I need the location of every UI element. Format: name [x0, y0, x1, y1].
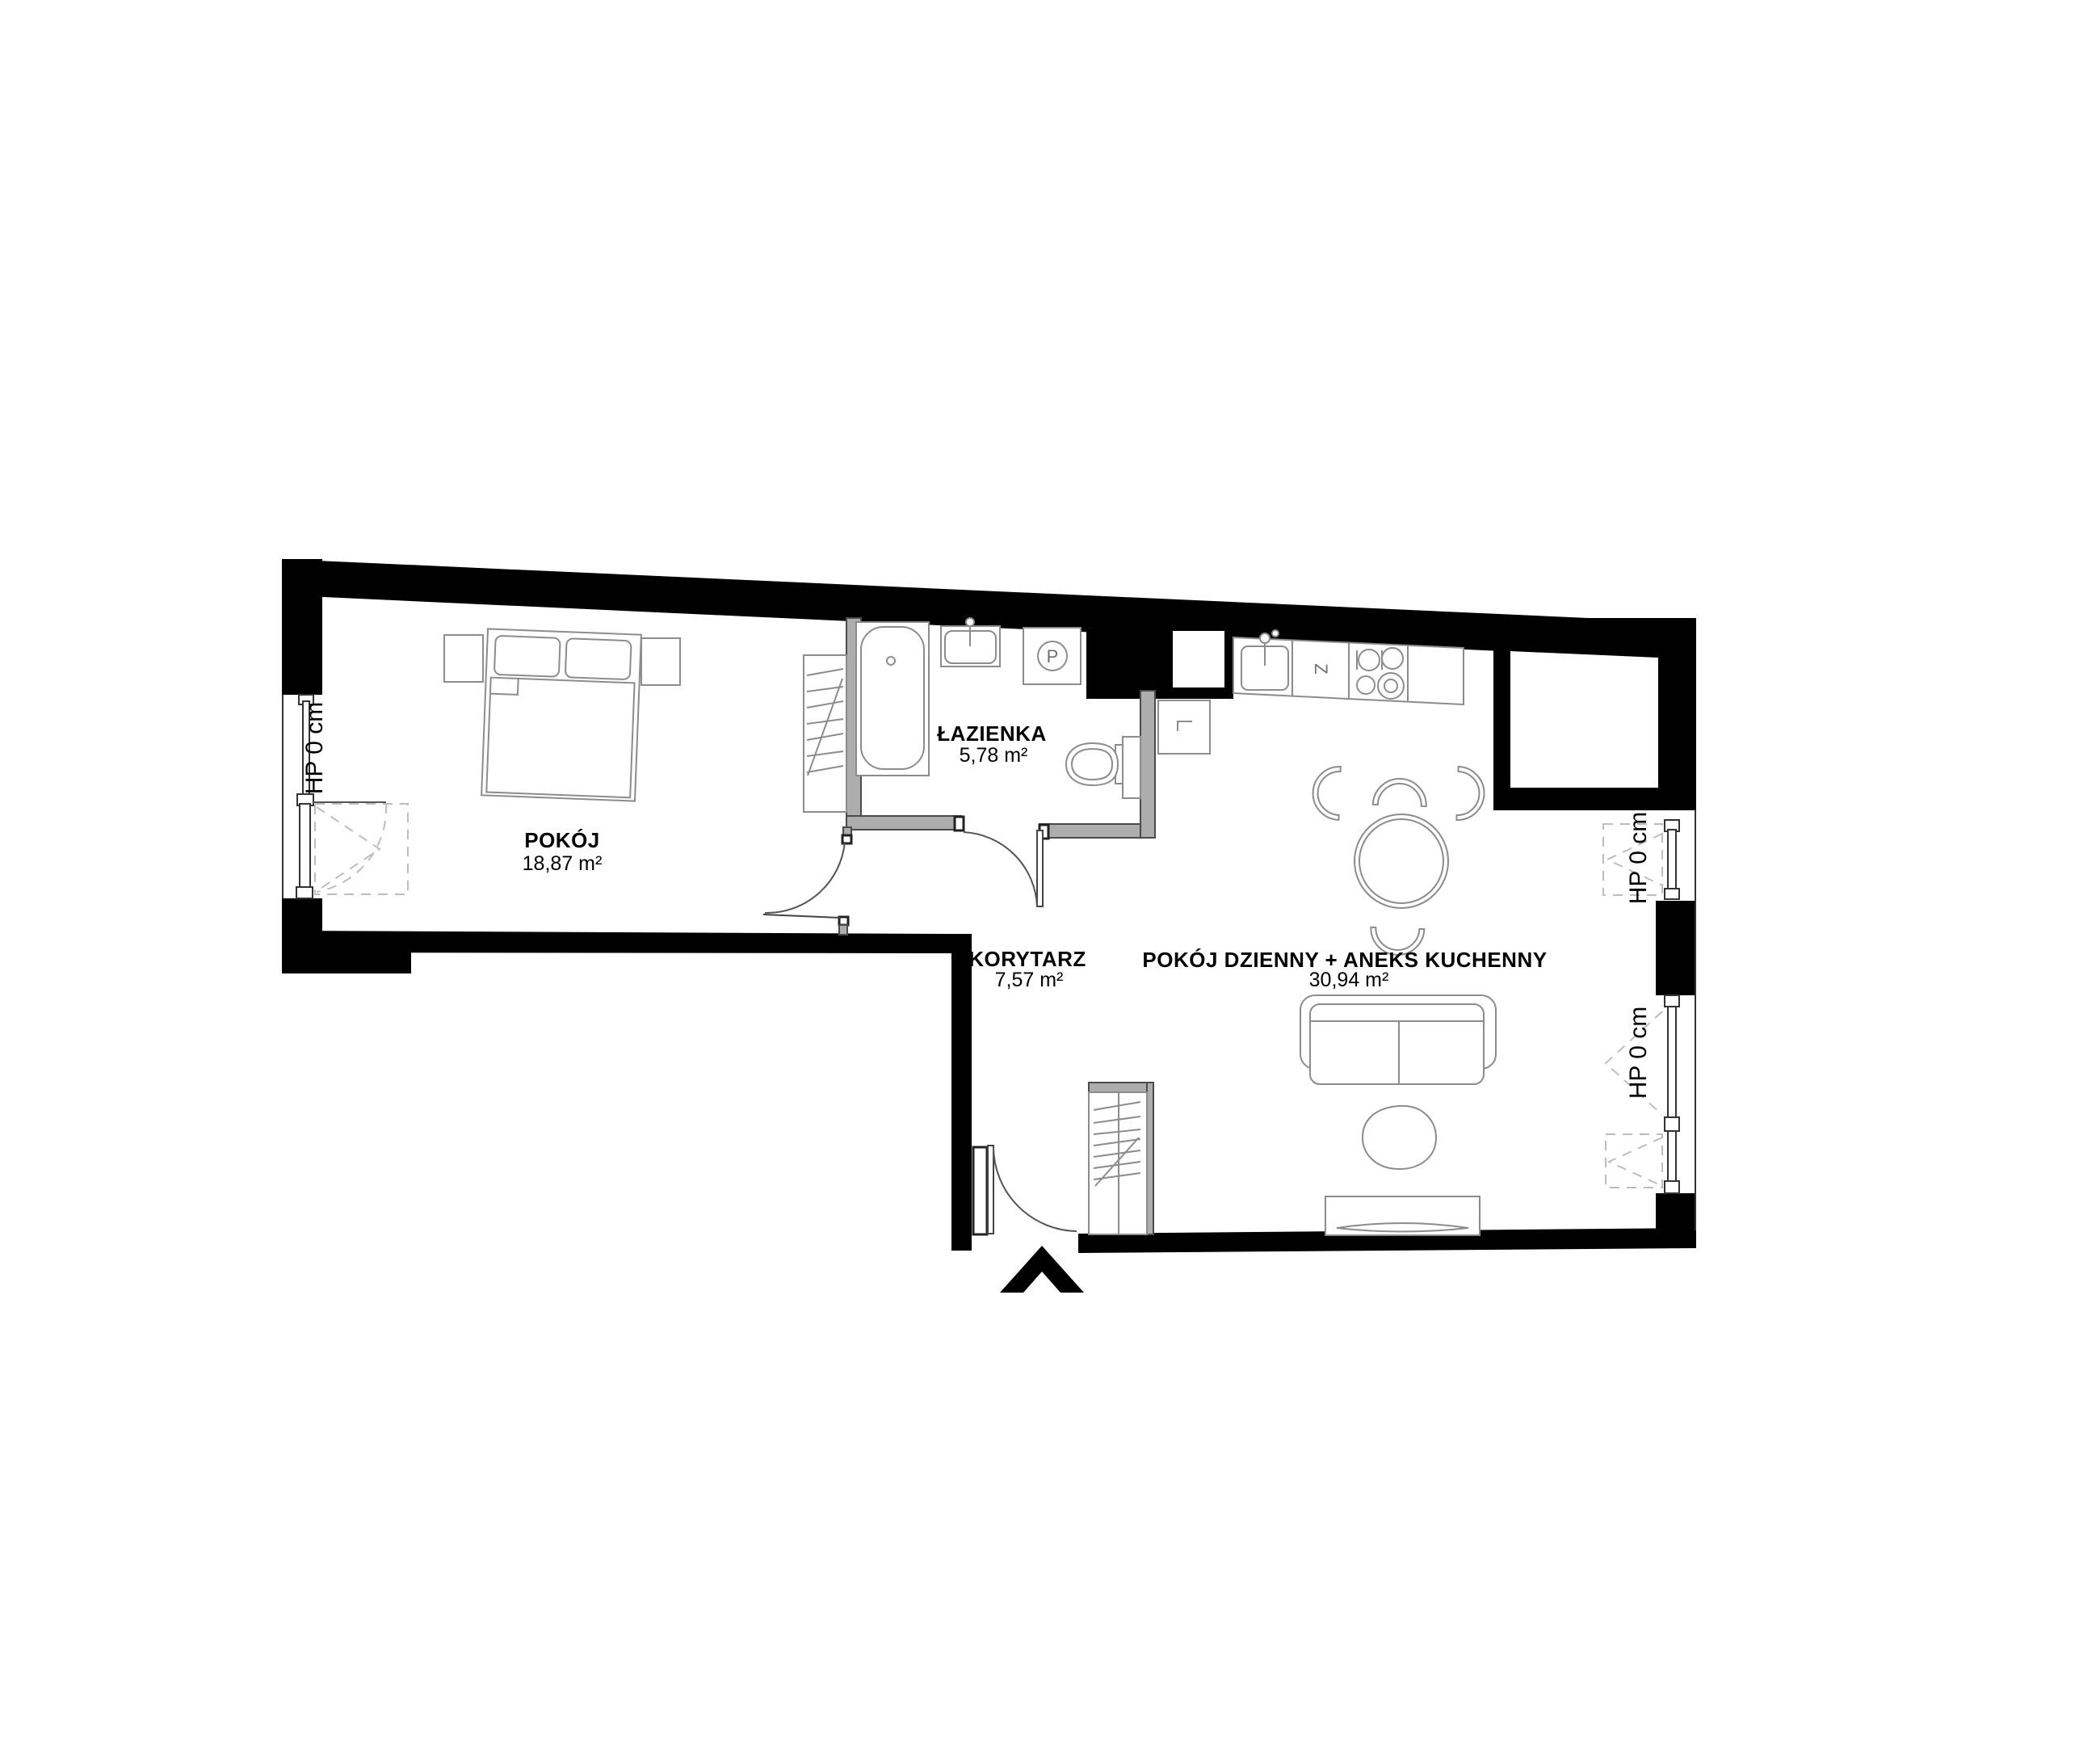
salon-area: 30,94 m²	[1309, 969, 1389, 991]
korytarz-label: KORYTARZ	[968, 947, 1086, 971]
right-lower-window-glazing-lower	[1668, 1131, 1676, 1181]
pokoj-divider-stub-bottom	[839, 925, 847, 935]
right-wall-bottom-block	[1656, 1193, 1696, 1248]
pokoj-bottom-wall	[282, 931, 951, 953]
bathroom-door-swing-arc	[964, 832, 1037, 906]
bed-pillow-left	[494, 636, 561, 677]
dishwasher-symbol: Z	[1311, 663, 1331, 674]
right-lower-window-glazing-upper	[1668, 1007, 1676, 1117]
right-upper-window-cap-bottom	[1665, 889, 1679, 899]
sofa-seat	[1310, 1004, 1484, 1084]
right-upper-window-glazing	[1668, 830, 1676, 889]
dining-table	[1354, 814, 1448, 908]
left-window-cap-bottom	[296, 887, 313, 898]
dining-set	[1312, 766, 1485, 956]
left-wall-upper	[282, 559, 322, 695]
toilet	[1066, 737, 1140, 798]
left-window-and-balcony-door: HP 0 cm	[296, 695, 408, 898]
coffee-table	[1363, 1106, 1436, 1169]
entrance-door-swing-arc	[993, 1147, 1077, 1231]
burner-4-inner	[1384, 679, 1397, 692]
korytarz-area: 7,57 m²	[995, 969, 1064, 991]
lazienka-label: ŁAZIENKA	[937, 721, 1046, 746]
pokoj-door	[763, 842, 845, 918]
entry-wardrobe	[1089, 1083, 1153, 1234]
burner-3	[1357, 676, 1375, 694]
dining-chair-right	[1456, 767, 1485, 821]
entrance-door-jamb	[973, 1147, 987, 1234]
bathroom-door	[964, 830, 1043, 906]
corridor-step-wall	[951, 934, 972, 1251]
entrance-door-leaf	[988, 1146, 993, 1234]
living-room-furniture	[1300, 995, 1496, 1235]
kitchen-tall-cabinet	[1158, 700, 1210, 754]
bed-pillow-right	[565, 638, 632, 679]
dining-chair-top	[1373, 778, 1427, 806]
pokoj-area: 18,87 m²	[523, 852, 603, 875]
pokoj-door-swing-arc	[765, 842, 845, 913]
dining-chair-left	[1312, 766, 1340, 820]
pokoj-door-leaf	[763, 915, 840, 918]
bed-mattress	[486, 678, 634, 798]
bathroom-sink	[941, 618, 1000, 666]
burner-1	[1359, 650, 1380, 671]
bathroom-right-wall	[1140, 691, 1155, 838]
bathtub-basin	[861, 627, 924, 769]
kitchen-faucet-knob	[1272, 630, 1279, 637]
right-lower-window-cap-bottom	[1665, 1181, 1679, 1193]
bathtub-drain	[887, 657, 895, 665]
pokoj-label: POKÓJ	[524, 828, 600, 852]
bedroom-wardrobe	[804, 655, 846, 812]
doors	[763, 830, 1084, 1293]
bathroom-door-jamb-left	[955, 817, 964, 830]
entry-wardrobe-top-band	[1089, 1083, 1153, 1092]
burner-2	[1382, 648, 1403, 669]
washing-machine: P	[1023, 628, 1081, 684]
entrance-arrow-icon	[1000, 1246, 1084, 1293]
entry-wardrobe-right-band	[1147, 1083, 1153, 1234]
right-lower-window-hp-label: HP 0 cm	[1625, 1007, 1652, 1099]
nightstand-right	[641, 638, 680, 685]
pokoj-door-jamb-top	[842, 835, 851, 843]
bottom-left-corner-block	[282, 952, 411, 973]
bathroom-bottom-wall-right	[1039, 824, 1155, 838]
toilet-tank	[1123, 737, 1140, 798]
right-wall-mid-block	[1656, 901, 1696, 995]
right-upper-window-hp-label: HP 0 cm	[1625, 812, 1652, 904]
bedroom-furniture	[481, 629, 641, 801]
kitchen-faucet-head	[1260, 633, 1270, 643]
balcony-door-swing-dashes	[315, 804, 408, 894]
right-lower-window: HP 0 cm	[1606, 995, 1679, 1193]
right-upper-window: HP 0 cm	[1603, 812, 1679, 904]
sink-faucet-head	[966, 618, 974, 626]
left-balcony-door-glazing	[300, 804, 310, 889]
bathroom-door-leaf	[1037, 830, 1043, 906]
tv-stand	[1325, 1196, 1480, 1235]
floor-plan-page: HP 0 cm HP 0 cm HP 0 cm	[0, 0, 2100, 1745]
shaft-small-opening	[1173, 631, 1224, 687]
left-window-hp-label: HP 0 cm	[301, 702, 328, 794]
shaft-large-opening	[1510, 651, 1658, 788]
lazienka-area: 5,78 m²	[960, 744, 1028, 767]
washer-symbol: P	[1047, 646, 1059, 666]
right-lower-window-mullion	[1665, 1117, 1679, 1131]
right-lower-window-cap-top	[1665, 995, 1679, 1007]
bathroom-bottom-wall-left	[846, 816, 961, 830]
floor-plan-drawing: HP 0 cm HP 0 cm HP 0 cm	[0, 0, 2100, 1745]
entrance-door	[973, 1146, 1084, 1293]
pokoj-door-jamb-bottom	[839, 917, 848, 925]
nightstand-left	[444, 635, 483, 682]
